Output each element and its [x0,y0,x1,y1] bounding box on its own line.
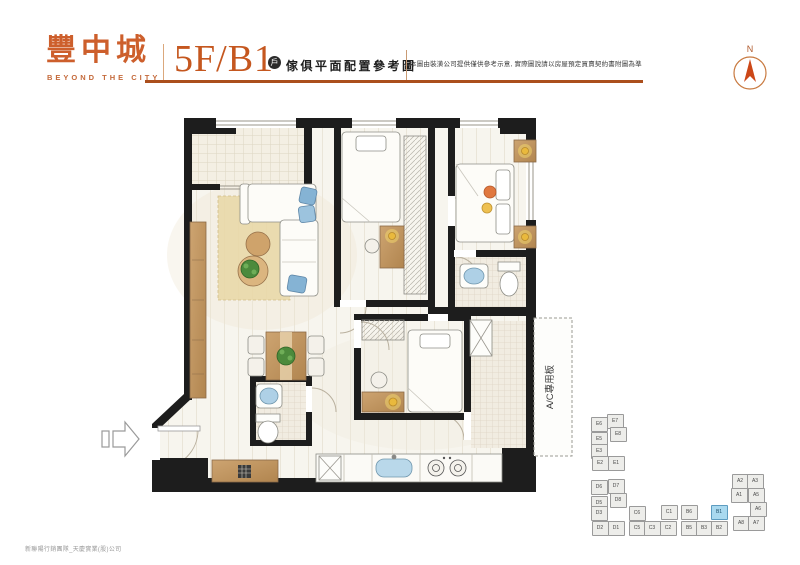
keyplan-unit-A3: A3 [747,474,764,489]
footer-credit: 新聯陽行銷團隊_天慶實業(股)公司 [25,544,121,553]
keyplan-unit-D6: D6 [591,480,608,495]
keyplan: E6E7E5E8E3E2E1D6D7D5D8D3D2D1C6C1C5C3C2B6… [0,0,800,565]
keyplan-unit-C3: C3 [644,521,661,536]
keyplan-unit-A2: A2 [732,474,749,489]
keyplan-unit-D8: D8 [610,493,627,508]
keyplan-unit-B5: B5 [681,521,698,536]
keyplan-unit-A1: A1 [731,488,748,503]
keyplan-unit-C6: C6 [629,506,646,521]
keyplan-unit-D2: D2 [592,521,609,536]
keyplan-unit-E1: E1 [608,456,625,471]
keyplan-unit-E2: E2 [592,456,609,471]
keyplan-unit-C5: C5 [629,521,646,536]
keyplan-unit-B1: B1 [711,505,728,520]
keyplan-unit-E6: E6 [591,417,608,432]
keyplan-unit-D3: D3 [591,506,608,521]
keyplan-unit-B2: B2 [711,521,728,536]
floorplan-page: 豐中城 BEYOND THE CITY 5F/B1 戶 傢俱平面配置參考圖 本圖… [0,0,800,565]
keyplan-unit-C2: C2 [660,521,677,536]
keyplan-unit-A5: A5 [748,488,765,503]
keyplan-unit-D1: D1 [608,521,625,536]
keyplan-unit-A6: A6 [750,502,767,517]
keyplan-unit-C1: C1 [661,505,678,520]
keyplan-unit-B6: B6 [681,505,698,520]
keyplan-unit-E8: E8 [610,427,627,442]
keyplan-unit-D7: D7 [608,479,625,494]
keyplan-unit-A7: A7 [748,516,765,531]
keyplan-unit-B3: B3 [696,521,713,536]
keyplan-unit-A8: A8 [733,516,750,531]
